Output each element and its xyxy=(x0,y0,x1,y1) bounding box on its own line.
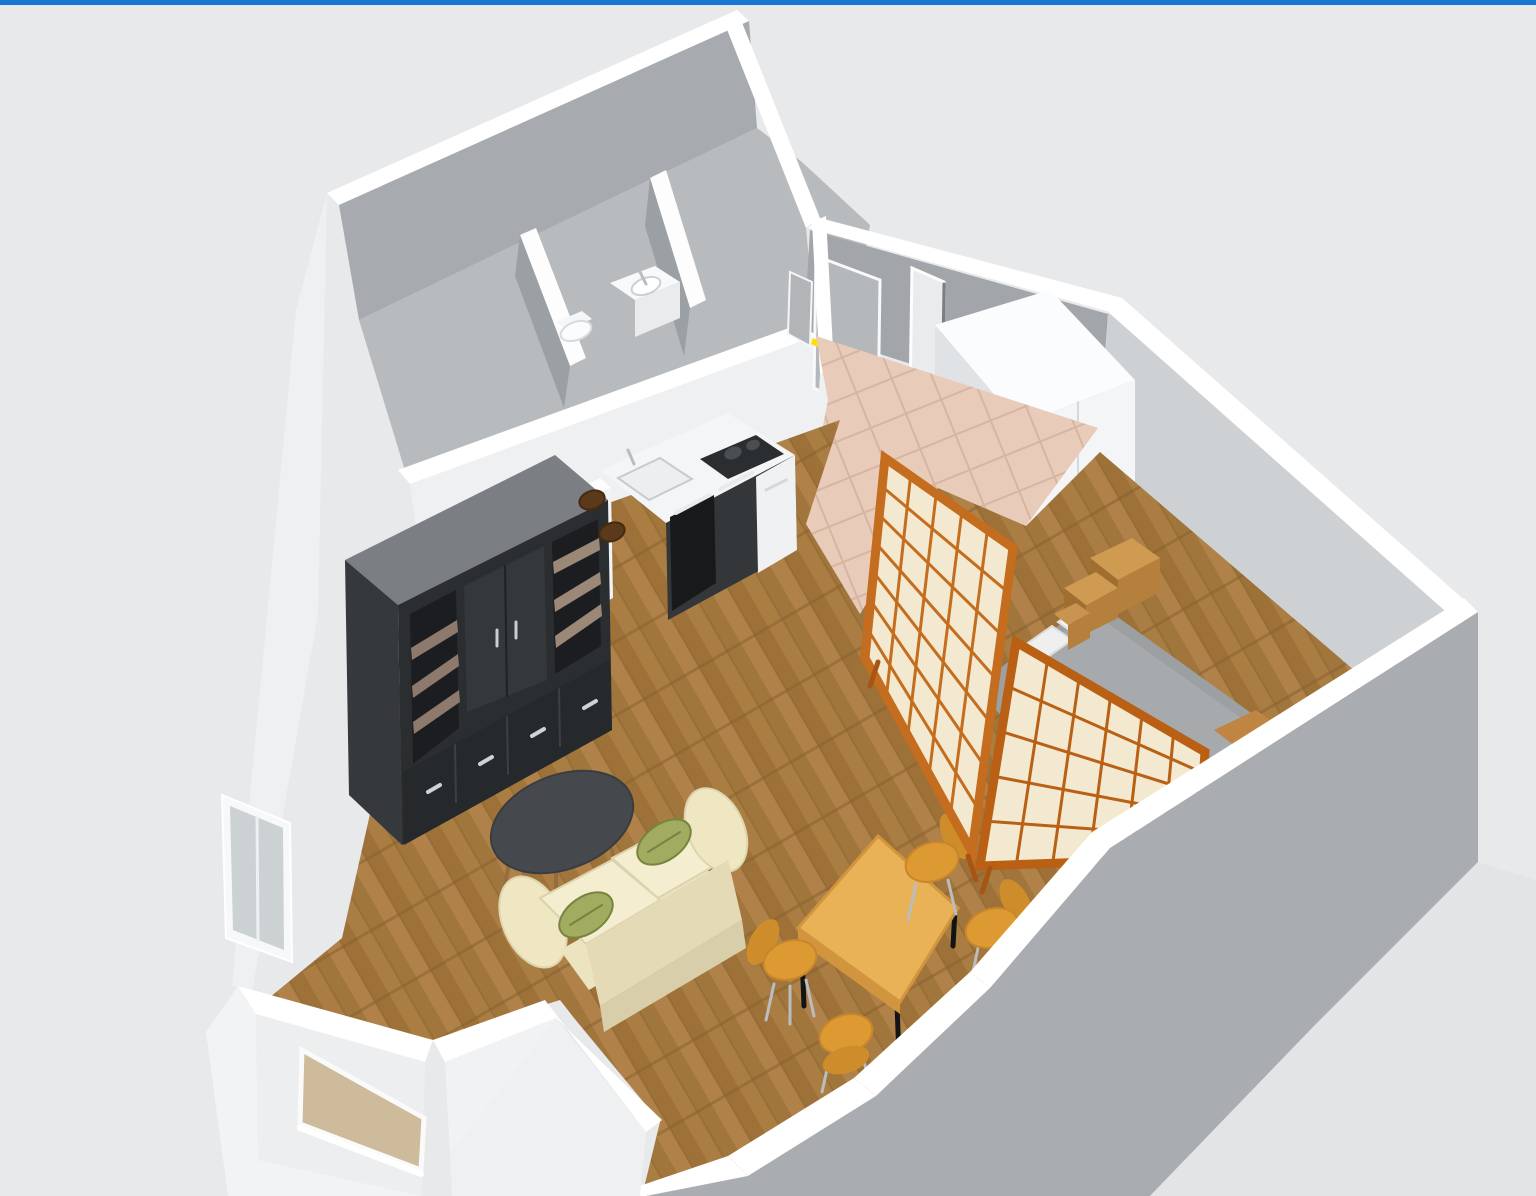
wardrobe-drawer-gap3 xyxy=(559,689,560,746)
scene-root xyxy=(0,0,1536,1196)
app-window xyxy=(0,0,1536,1196)
wardrobe-drawer-gap2 xyxy=(507,717,508,774)
window-top-border xyxy=(0,0,1536,5)
bay-upper-window-mullion xyxy=(257,817,258,940)
front-door-leaf-small xyxy=(788,272,812,346)
wardrobe-drawer-gap1 xyxy=(455,745,456,802)
floorplan-3d-view[interactable] xyxy=(0,0,1536,1196)
